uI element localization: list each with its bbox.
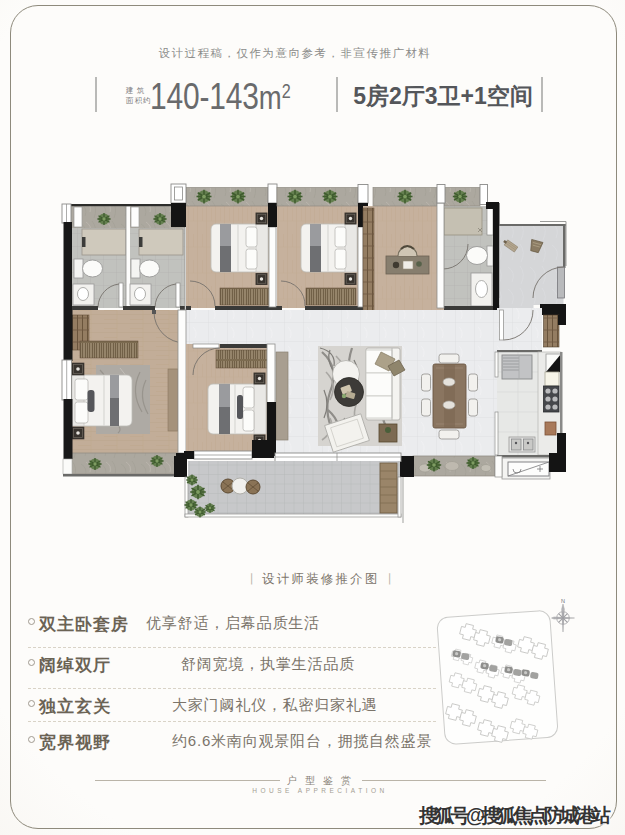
svg-text:N: N — [561, 598, 565, 604]
